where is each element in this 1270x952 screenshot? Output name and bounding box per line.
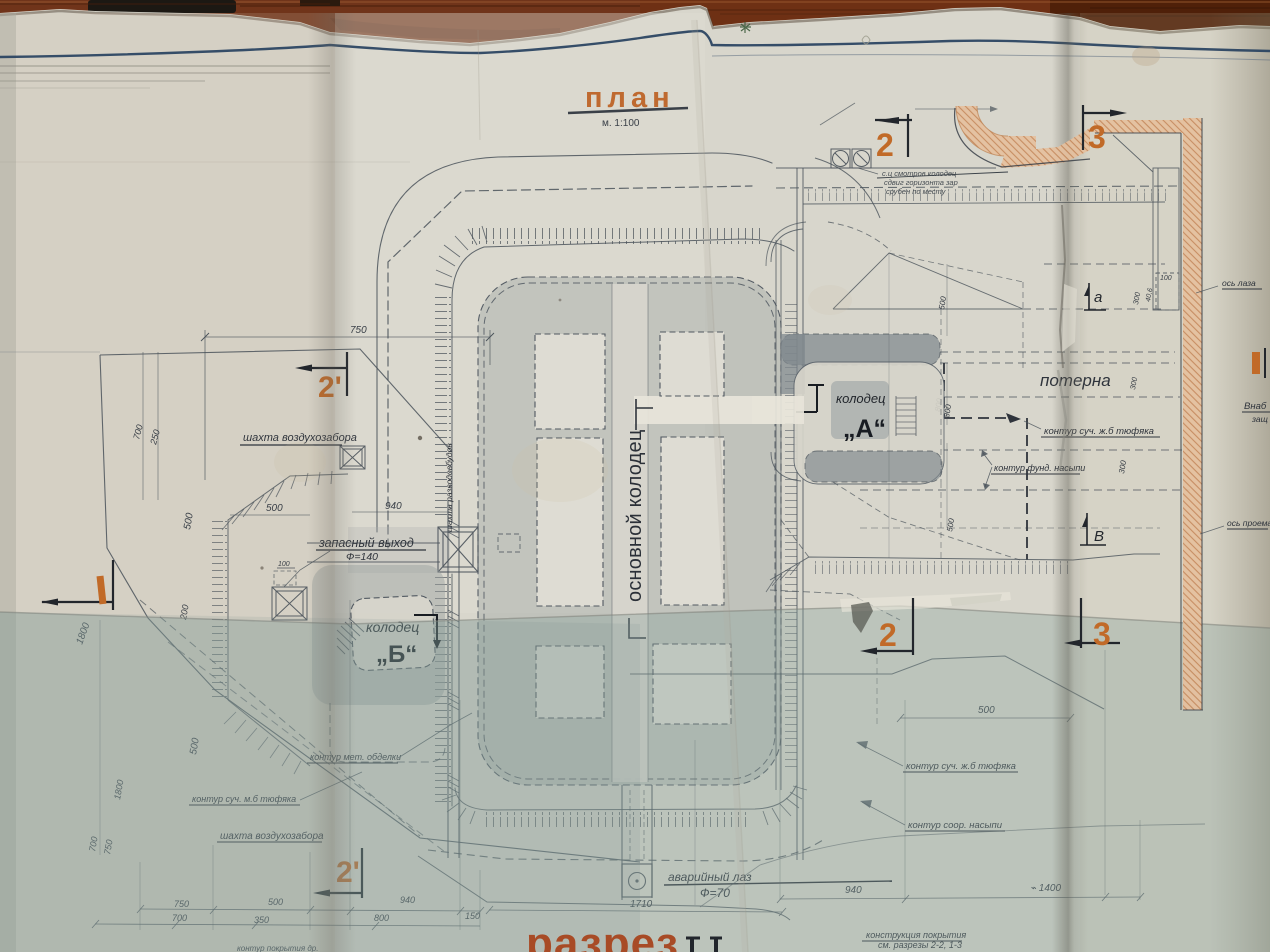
svg-text:срубен по месту: срубен по месту bbox=[886, 187, 947, 196]
svg-text:ось лаза: ось лаза bbox=[1222, 278, 1256, 288]
svg-text:шахта разводовбудов: шахта разводовбудов bbox=[444, 443, 454, 532]
svg-text:ось проема: ось проема bbox=[1227, 518, 1270, 528]
svg-text:В: В bbox=[1094, 528, 1104, 545]
svg-text:100: 100 bbox=[1160, 275, 1172, 282]
svg-text:м. 1:100: м. 1:100 bbox=[602, 118, 640, 129]
svg-text:а: а bbox=[1094, 289, 1102, 306]
svg-text:разрез: разрез bbox=[526, 919, 679, 952]
svg-text:940: 940 bbox=[385, 501, 402, 512]
svg-text:сдвиг горизонта зар: сдвиг горизонта зар bbox=[884, 178, 958, 187]
svg-text:3: 3 bbox=[1088, 119, 1106, 155]
svg-text:с.ц смотров колодец: с.ц смотров колодец bbox=[882, 169, 957, 178]
svg-text:Внаб: Внаб bbox=[1244, 401, 1267, 412]
svg-text:2: 2 bbox=[876, 127, 894, 163]
svg-text:„А“: „А“ bbox=[843, 415, 886, 443]
svg-text:100: 100 bbox=[278, 561, 290, 568]
svg-text:защ: защ bbox=[1251, 414, 1268, 424]
svg-text:2: 2 bbox=[879, 617, 897, 653]
svg-text:колодец: колодец bbox=[836, 391, 886, 406]
svg-text:500: 500 bbox=[266, 503, 283, 514]
svg-text:3: 3 bbox=[1093, 616, 1111, 652]
svg-text:основной колодец: основной колодец bbox=[624, 430, 646, 603]
